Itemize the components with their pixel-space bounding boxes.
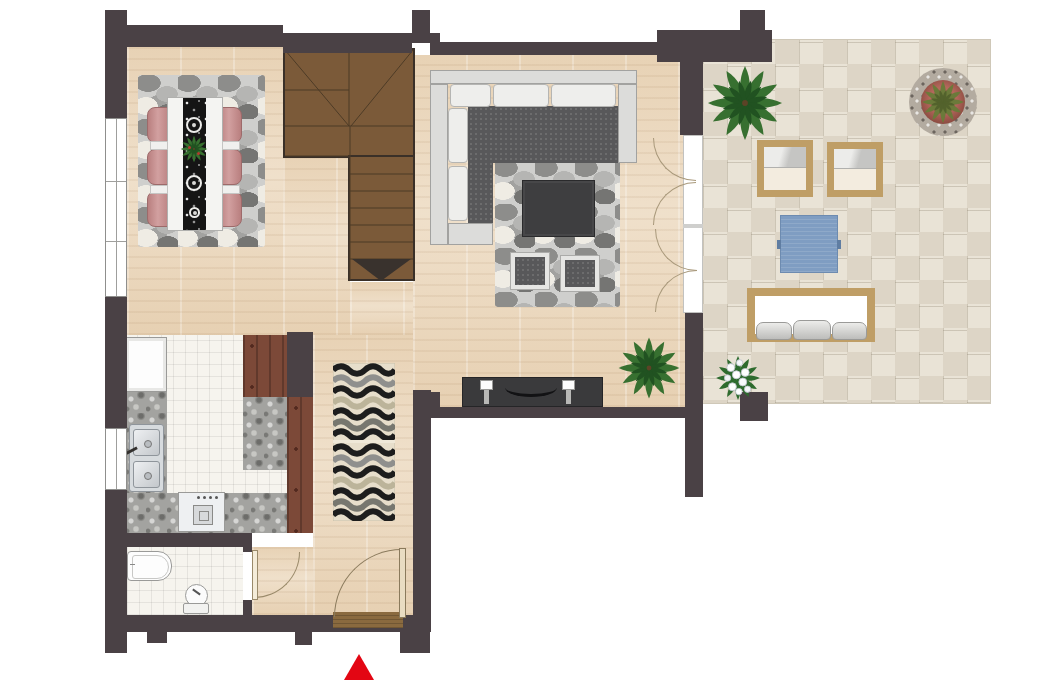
window-mullion (116, 119, 117, 296)
wall-bath-right-upper (243, 547, 252, 552)
stove-knob (209, 496, 212, 499)
runner-medallion (186, 175, 202, 191)
stove-burner-inner (199, 511, 209, 521)
stove-knob (203, 496, 206, 499)
window-dining (105, 118, 127, 297)
exterior-wall-top-4 (657, 30, 772, 62)
candle-holder (562, 380, 575, 390)
centerpiece-plant (180, 135, 208, 163)
wall-living-bottom (420, 407, 685, 418)
sofa-back-rail (430, 70, 637, 84)
refrigerator (125, 337, 167, 392)
floor-plan (0, 0, 1043, 680)
candle-holder (480, 380, 493, 390)
stove-knob (197, 496, 200, 499)
lounge-towel (834, 149, 876, 169)
sofa-chaise-seat (468, 106, 493, 223)
wall-bath-top (105, 533, 252, 547)
table-stretcher (222, 185, 240, 194)
sink-basin (133, 461, 160, 488)
exterior-wall-top-2 (283, 33, 412, 53)
console-speaker-curve (505, 378, 557, 397)
wall-stub-b (295, 627, 312, 645)
runner-medallion (186, 117, 202, 133)
table-stretcher (150, 141, 168, 150)
sofa-side-cushion (448, 166, 468, 221)
white-flower-plant (706, 346, 770, 410)
floor-passage (350, 282, 413, 335)
candle-stem (566, 390, 571, 404)
table-side-tab (777, 240, 781, 249)
window-divider (106, 241, 126, 242)
wall-stub-a (147, 632, 167, 643)
lounge-towel (764, 147, 806, 168)
planter-plant (921, 80, 965, 124)
pouf-top (565, 260, 595, 287)
exterior-wall-left (105, 10, 127, 653)
sofa-back-cushion (493, 84, 549, 107)
bench-pillow (793, 320, 831, 340)
table-stretcher (150, 185, 168, 194)
cabinet-tall (287, 397, 313, 533)
entrance-arrow (344, 654, 374, 680)
wall-right-lower (685, 313, 703, 497)
bathroom-door-leaf (252, 550, 258, 600)
sofa-right-arm (618, 84, 637, 163)
candle-stem (484, 390, 489, 404)
table-stretcher (222, 141, 240, 150)
stove-knob (215, 496, 218, 499)
bench-pillow (756, 322, 792, 340)
ottoman-pouf (560, 255, 600, 292)
wave-runner-rug (333, 363, 395, 521)
wall-hall-right (413, 390, 431, 632)
sofa-side-cushion (448, 108, 468, 163)
sink-drain (144, 472, 152, 480)
wall-bath-right-lower (243, 600, 252, 615)
ottoman-pouf (510, 252, 550, 290)
window-kitchen (105, 428, 127, 490)
sink-drain (144, 440, 152, 448)
sink-basin (133, 429, 160, 456)
counter-right (243, 397, 287, 470)
stove-burner (193, 505, 213, 525)
window-divider (106, 181, 126, 182)
runner-medallion (189, 207, 200, 218)
wall-pillar-stair (412, 10, 430, 43)
blue-side-table (780, 215, 838, 273)
wall-right-upper (680, 42, 703, 135)
sofa-back-cushion (551, 84, 616, 107)
bathtub-basin (132, 555, 169, 579)
winder-staircase (283, 48, 415, 282)
exterior-wall-top-1 (105, 25, 283, 47)
centerpiece-flower-dot (197, 152, 200, 155)
lounge-chair (827, 142, 883, 197)
front-door-leaf (399, 548, 406, 618)
patio-palm-plant (706, 64, 784, 142)
wall-foot-right (400, 632, 430, 653)
cooktop-stove (178, 492, 225, 532)
toilet-lever (192, 589, 201, 596)
centerpiece-flower-dot (188, 146, 191, 149)
pouf-top (515, 257, 545, 285)
wall-pillar-patio (740, 10, 765, 30)
cabinet-upper-right (243, 335, 287, 397)
living-room-palm-plant (617, 336, 681, 400)
sofa-back-cushion (450, 84, 491, 107)
sofa-left-arm (430, 84, 448, 245)
table-side-tab (837, 240, 841, 249)
lounge-chair (757, 140, 813, 197)
coffee-table (522, 180, 595, 237)
bathtub (127, 551, 172, 581)
bench-pillow (832, 322, 867, 340)
exterior-wall-top-3 (430, 42, 657, 55)
wall-kitchen-stub (287, 332, 313, 397)
toilet-tank (183, 603, 209, 614)
sofa-chaise-end (448, 223, 493, 245)
tub-faucet (130, 564, 135, 565)
window-mullion (116, 429, 117, 489)
